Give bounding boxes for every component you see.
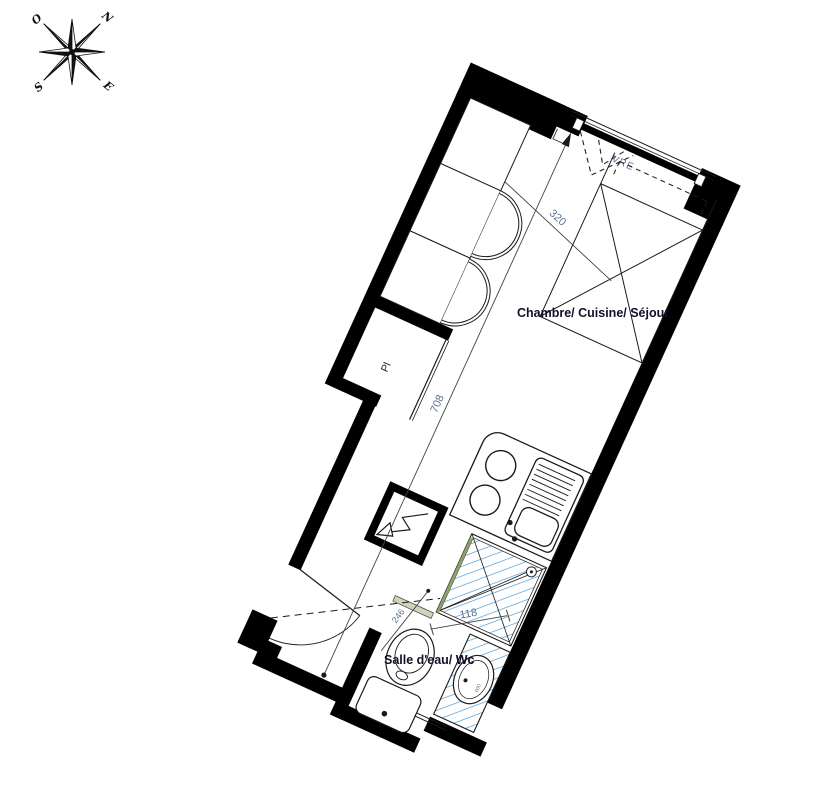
compass-south-label: S [32, 80, 46, 95]
dim-320-label: 320 [547, 207, 569, 228]
window-label: VRE [610, 154, 636, 174]
compass-rose: N O S E [29, 8, 116, 94]
apartment-plan: VRE Pl [201, 63, 740, 778]
compass-east-label: E [100, 78, 116, 94]
compass-center [69, 49, 74, 54]
compass-west-label: O [29, 11, 45, 27]
sink-dot-1 [507, 520, 512, 525]
wall-left-lower [289, 401, 375, 570]
closet-label: Pl [379, 360, 394, 373]
wall-closet-bottom [338, 378, 381, 406]
floorplan-page: N O S E [0, 0, 814, 800]
compass-north-label: N [98, 8, 116, 26]
bed [540, 153, 717, 363]
duct [369, 486, 443, 560]
window-glazing [579, 123, 698, 182]
entry-door-leaf [293, 570, 366, 616]
sink-dot-2 [512, 536, 517, 541]
dim-708-dot [320, 672, 327, 679]
wall-bottom-entry [252, 650, 342, 702]
main-room-label: Chambre/ Cuisine/ Séjour [517, 306, 669, 320]
bathroom-label: Salle d'eau/ Wc [384, 653, 475, 667]
floorplan-drawing: N O S E [0, 0, 814, 800]
dim-246-label: 246 [390, 607, 407, 625]
